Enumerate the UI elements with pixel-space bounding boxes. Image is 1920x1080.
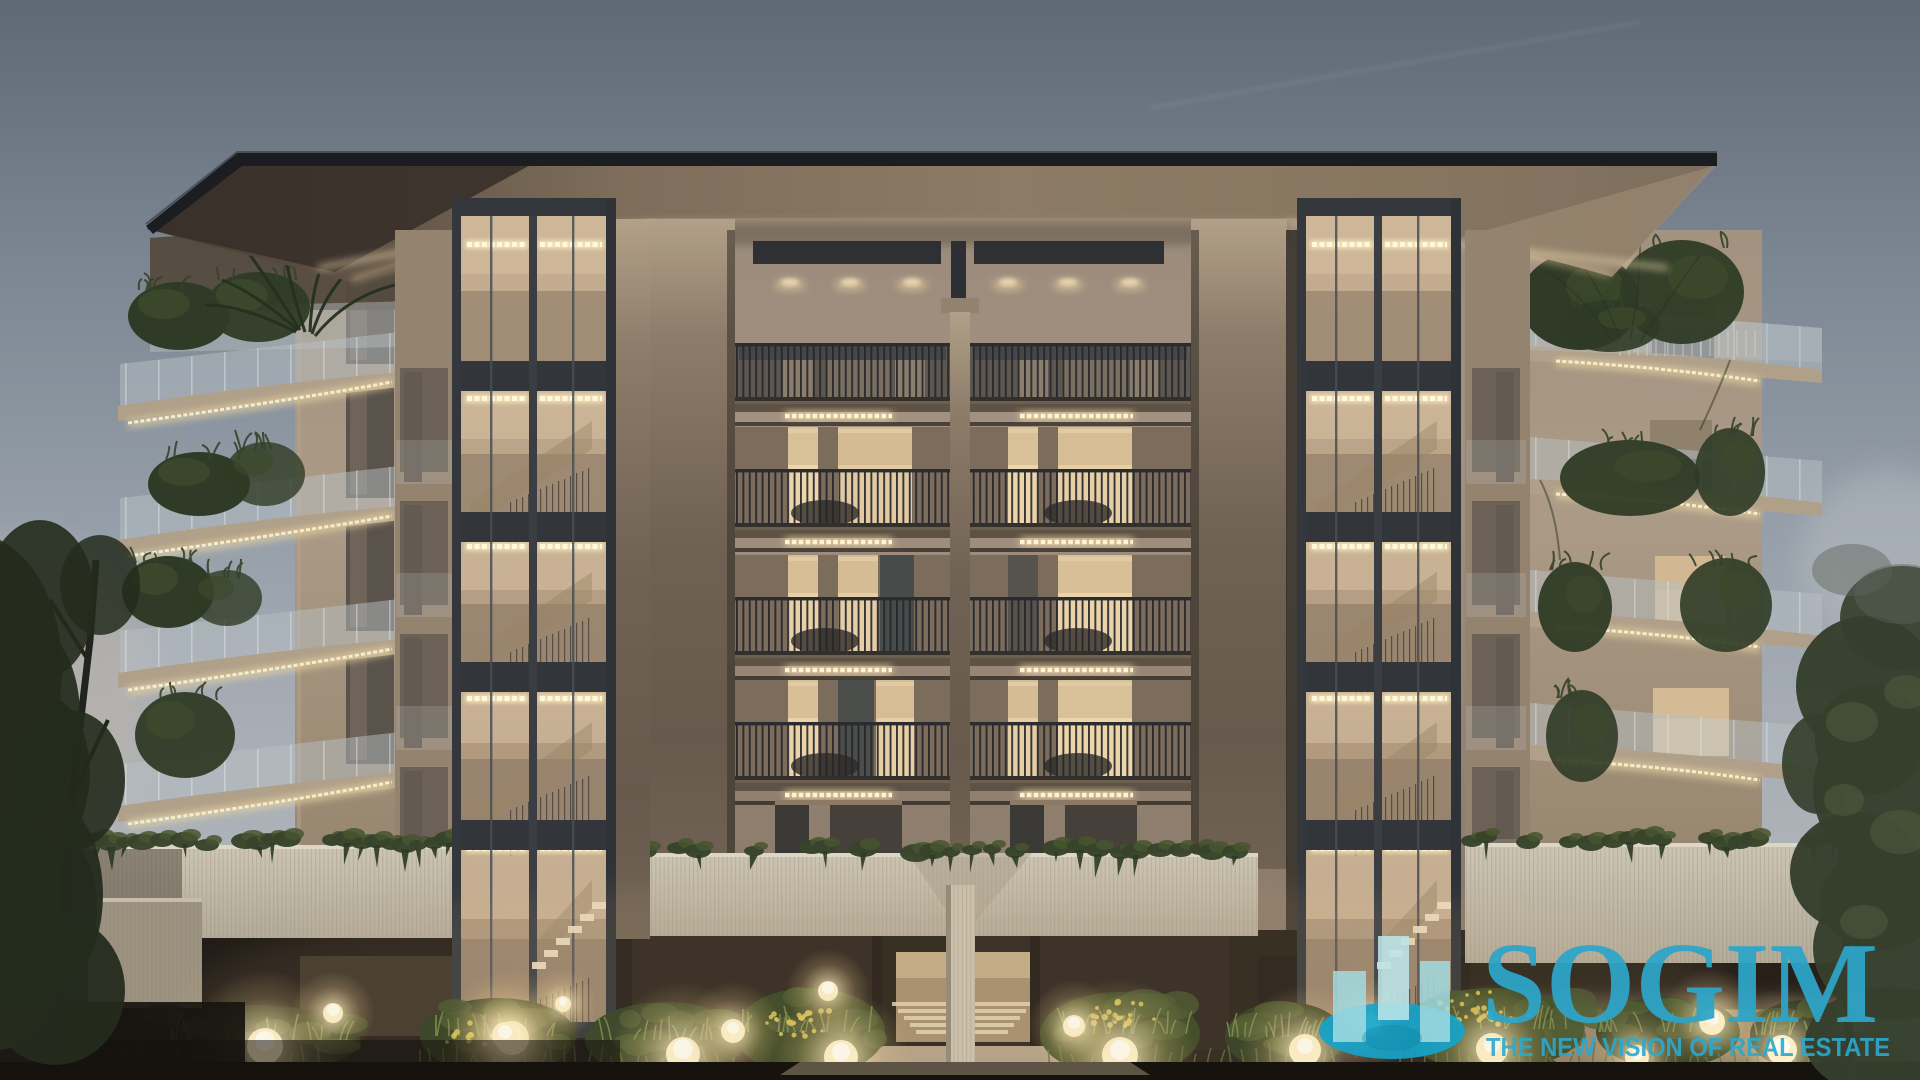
- svg-text:THE NEW VISION OF REAL ESTATE: THE NEW VISION OF REAL ESTATE: [1486, 1034, 1890, 1062]
- svg-text:SOGIM: SOGIM: [1482, 920, 1878, 1048]
